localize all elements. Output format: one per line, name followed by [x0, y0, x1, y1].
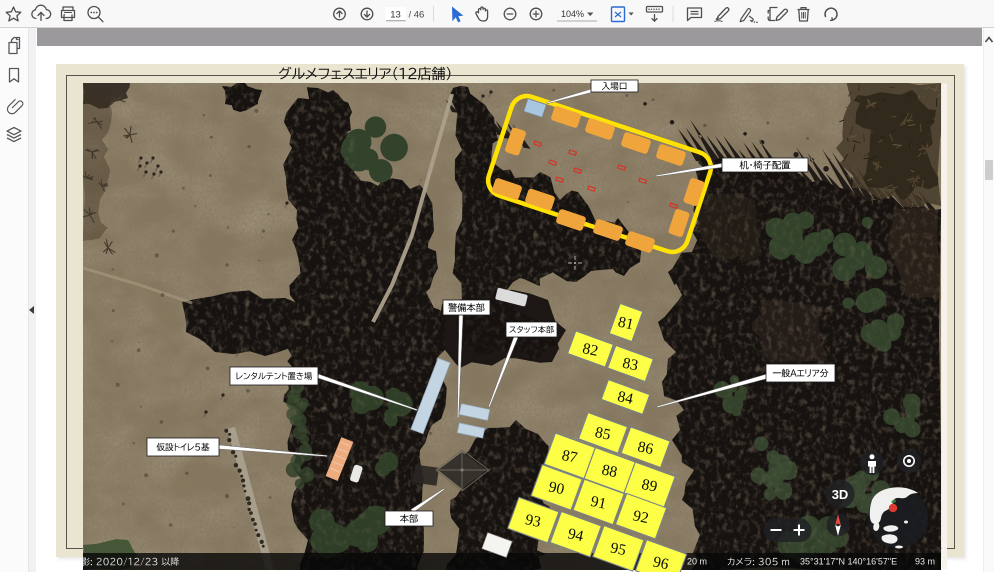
svg-text:35°31'17"N 140°16'57"E: 35°31'17"N 140°16'57"E	[800, 557, 897, 567]
svg-text:93 m: 93 m	[915, 557, 935, 567]
svg-text:20 m: 20 m	[687, 557, 707, 567]
svg-text:/ 46: / 46	[409, 9, 425, 20]
svg-text:13: 13	[390, 9, 401, 20]
svg-text:104%: 104%	[561, 9, 584, 19]
svg-text:3D: 3D	[832, 487, 849, 502]
